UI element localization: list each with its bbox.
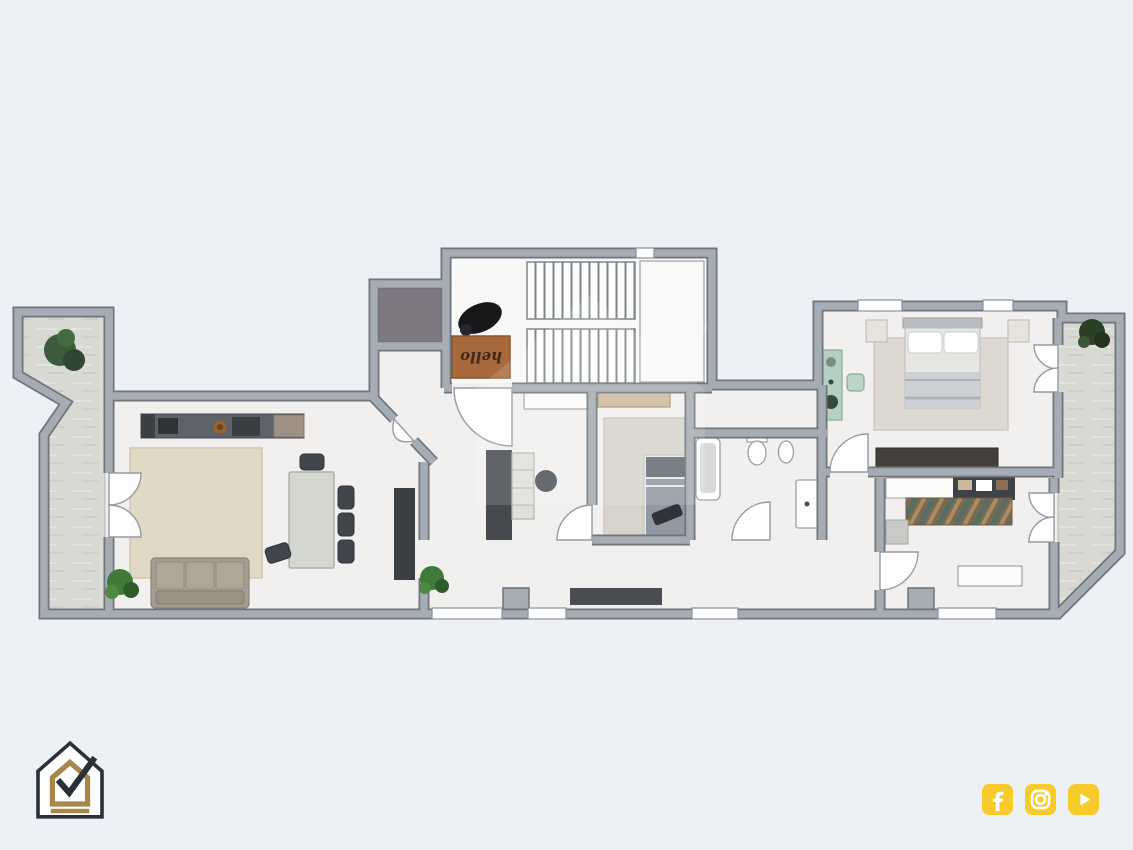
nightstand-left [866, 320, 887, 342]
dining-chair [338, 540, 354, 563]
vanity-stool [847, 374, 864, 391]
dining-table [289, 472, 334, 568]
facebook-icon[interactable] [982, 784, 1013, 815]
coat-detail [460, 324, 472, 336]
nightstand-right [1008, 320, 1029, 342]
desk [886, 478, 954, 498]
toilet [747, 434, 767, 465]
window [432, 608, 502, 619]
tv-sideboard [394, 488, 415, 580]
wall-stub [503, 588, 529, 612]
shelf-books [958, 480, 972, 490]
window [938, 608, 996, 619]
kitchen-cabinet [141, 414, 155, 438]
dining-chair [300, 454, 324, 470]
bidet [779, 441, 794, 463]
window [528, 608, 566, 619]
youtube-icon[interactable] [1068, 784, 1099, 815]
elevator [377, 287, 443, 345]
office-cabinet [886, 520, 908, 544]
double-bed [903, 318, 982, 408]
sofa [151, 558, 249, 608]
social-bar [982, 782, 1106, 816]
window [983, 300, 1013, 311]
dining-chair [338, 513, 354, 536]
logo-underline [51, 809, 89, 813]
kitchen-pot-inner [217, 424, 223, 430]
flyer-canvas: hello [0, 0, 1133, 850]
shelf-box [996, 480, 1008, 490]
doormat-text: hello [460, 348, 502, 366]
laptop [976, 480, 992, 491]
logo-svg [30, 738, 110, 822]
hall-doormat-dark [570, 588, 662, 605]
window [692, 608, 738, 619]
right-terrace [1058, 318, 1120, 614]
building-entry-door [636, 248, 654, 258]
kitchen-fridge [274, 415, 304, 437]
kitchen-cooktop [232, 417, 260, 436]
wall-stub [908, 588, 934, 612]
radiator-bench [958, 566, 1022, 586]
patterned-rug [906, 498, 1012, 525]
instagram-icon[interactable] [1025, 784, 1056, 815]
kitchen-sink [158, 418, 178, 434]
dining-chair [338, 486, 354, 509]
bathroom-sink-unit [796, 480, 819, 528]
floor-plan: hello [0, 0, 1133, 850]
window [858, 300, 902, 311]
house-check-logo-icon [30, 738, 110, 822]
